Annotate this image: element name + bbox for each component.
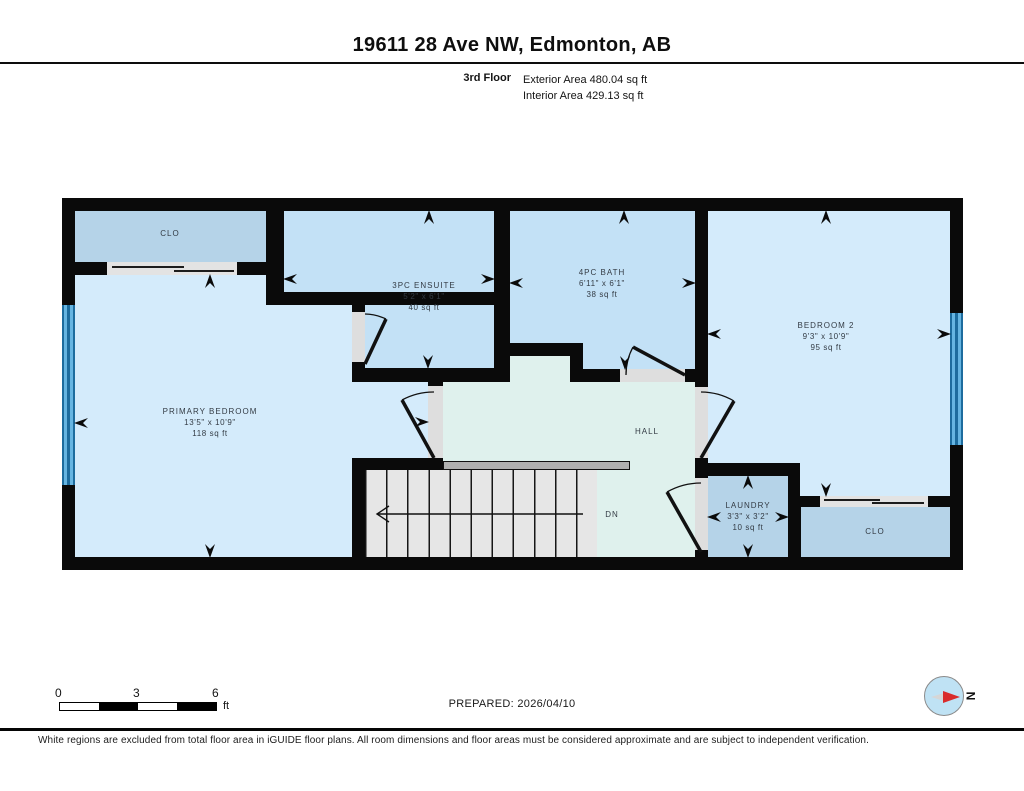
- room-dims: 9'3" x 10'9": [797, 331, 854, 342]
- room-dims: 3'3" x 3'2": [725, 511, 770, 522]
- footer-divider: [0, 728, 1024, 731]
- room-name: HALL: [635, 426, 659, 437]
- label-primary-bedroom: PRIMARY BEDROOM 13'5" x 10'9" 118 sq ft: [163, 406, 258, 439]
- room-dims: 13'5" x 10'9": [163, 417, 258, 428]
- stairs-railing: [443, 461, 630, 470]
- ensuite-door-opening: [352, 312, 365, 362]
- label-laundry: LAUNDRY 3'3" x 3'2" 10 sq ft: [725, 500, 770, 533]
- label-hall: HALL: [635, 426, 659, 437]
- label-ensuite: 3PC ENSUITE 5'2" x 6'1" 40 sq ft: [392, 280, 455, 313]
- label-closet-top: CLO: [160, 228, 179, 239]
- stairs-dn-label: DN: [605, 510, 619, 519]
- sliding-panel: [872, 502, 924, 504]
- bedroom2-door-opening: [695, 387, 708, 458]
- room-area: 95 sq ft: [797, 342, 854, 353]
- room-area: 10 sq ft: [725, 522, 770, 533]
- room-name: LAUNDRY: [725, 500, 770, 511]
- room-name: PRIMARY BEDROOM: [163, 406, 258, 417]
- room-name: CLO: [865, 526, 884, 537]
- room-bedroom2-2: [800, 463, 950, 496]
- room-area: 118 sq ft: [163, 428, 258, 439]
- room-dims: 6'11" x 6'1": [579, 278, 626, 289]
- room-hall-strip: [630, 461, 695, 470]
- floor-plan: CLO 3PC ENSUITE 5'2" x 6'1" 40 sq ft 4PC…: [62, 198, 963, 570]
- label-bath: 4PC BATH 6'11" x 6'1" 38 sq ft: [579, 267, 626, 300]
- compass-icon: [924, 676, 964, 716]
- floor-areas: Exterior Area 480.04 sq ft Interior Area…: [523, 72, 647, 104]
- closet-top-sliding-door: [107, 262, 237, 275]
- room-hall: [443, 382, 695, 461]
- primary-door-opening: [428, 386, 443, 458]
- room-area: 40 sq ft: [392, 302, 455, 313]
- sliding-panel: [824, 499, 880, 501]
- window-right: [950, 313, 963, 445]
- disclaimer-text: White regions are excluded from total fl…: [38, 735, 869, 746]
- closet-bottom-sliding-door: [820, 496, 928, 507]
- room-hall-notch: [510, 356, 570, 382]
- prepared-date: PREPARED: 2026/04/10: [0, 698, 1024, 710]
- room-ensuite: [284, 211, 494, 292]
- room-ensuite-2: [365, 305, 494, 368]
- room-area: 38 sq ft: [579, 289, 626, 300]
- header-divider: [0, 62, 1024, 64]
- interior-area: Interior Area 429.13 sq ft: [523, 88, 647, 104]
- room-name: 4PC BATH: [579, 267, 626, 278]
- window-left: [62, 305, 75, 485]
- stairs-treads: [365, 470, 597, 557]
- north-label: N: [963, 692, 977, 701]
- room-name: CLO: [160, 228, 179, 239]
- room-name: 3PC ENSUITE: [392, 280, 455, 291]
- floor-label: 3rd Floor: [463, 72, 511, 84]
- room-primary-bedroom-3: [352, 382, 428, 458]
- room-dims: 5'2" x 6'1": [392, 291, 455, 302]
- exterior-area: Exterior Area 480.04 sq ft: [523, 72, 647, 88]
- sliding-panel: [112, 266, 184, 268]
- label-bedroom2: BEDROOM 2 9'3" x 10'9" 95 sq ft: [797, 320, 854, 353]
- label-closet-bottom: CLO: [865, 526, 884, 537]
- sliding-panel: [174, 270, 234, 272]
- room-primary-bedroom-2: [266, 305, 352, 557]
- page-title: 19611 28 Ave NW, Edmonton, AB: [0, 34, 1024, 57]
- laundry-door-opening: [695, 478, 708, 550]
- bath-door-opening: [620, 369, 685, 382]
- compass-needle-north: [943, 691, 960, 703]
- room-name: BEDROOM 2: [797, 320, 854, 331]
- room-bath-2: [583, 343, 695, 369]
- compass: N: [924, 676, 982, 718]
